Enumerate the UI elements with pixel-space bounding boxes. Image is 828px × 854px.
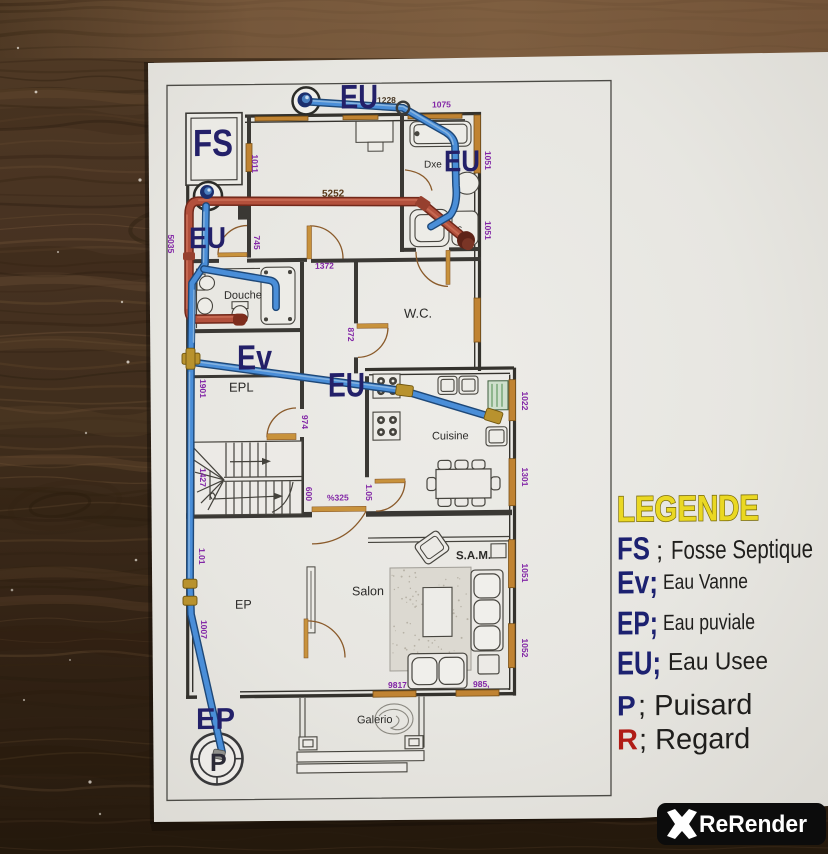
svg-text:%325: %325 [327, 492, 349, 502]
svg-text:Douche: Douche [224, 289, 262, 301]
svg-text:Dxe: Dxe [424, 159, 442, 170]
svg-text:Eau puviale: Eau puviale [663, 609, 755, 635]
svg-text:745: 745 [252, 235, 262, 250]
svg-text:1051: 1051 [520, 563, 530, 582]
svg-text:LEGENDE: LEGENDE [617, 487, 759, 530]
svg-text:EU: EU [340, 78, 378, 116]
svg-text:EU: EU [328, 366, 365, 404]
svg-text:EP: EP [235, 598, 252, 612]
svg-text:P: P [210, 749, 227, 777]
svg-text:Eau Vanne: Eau Vanne [663, 570, 748, 594]
svg-text:1051: 1051 [483, 221, 493, 240]
svg-text:FS: FS [617, 530, 650, 566]
svg-text:; Puisard: ; Puisard [638, 689, 752, 722]
svg-text:1007: 1007 [199, 620, 209, 639]
svg-text:1372: 1372 [315, 261, 334, 271]
svg-text:; Regard: ; Regard [639, 723, 750, 756]
svg-text:R: R [617, 724, 638, 756]
svg-text:FS: FS [193, 123, 233, 165]
svg-text:1051: 1051 [483, 151, 493, 170]
svg-text:Salon: Salon [352, 584, 384, 598]
svg-text:EU: EU [189, 222, 226, 255]
svg-text:Ev: Ev [237, 338, 272, 377]
svg-text:9817: 9817 [388, 680, 407, 690]
svg-text:1301: 1301 [520, 467, 530, 486]
svg-text:1.01: 1.01 [197, 548, 207, 565]
svg-text:;: ; [656, 535, 663, 565]
svg-text:Eau Usee: Eau Usee [668, 648, 768, 676]
svg-text:EP;: EP; [617, 604, 658, 641]
svg-text:Cuisine: Cuisine [432, 430, 469, 442]
svg-text:EPL: EPL [229, 380, 254, 395]
svg-text:ReRender: ReRender [699, 811, 807, 838]
svg-text:W.C.: W.C. [404, 306, 432, 321]
svg-text:Galerio: Galerio [357, 714, 392, 726]
svg-text:1011: 1011 [250, 154, 260, 173]
svg-text:5035: 5035 [166, 234, 176, 253]
svg-text:S.A.M.: S.A.M. [456, 550, 491, 562]
svg-text:1075: 1075 [432, 99, 451, 109]
svg-text:1901: 1901 [198, 379, 208, 398]
svg-text:Fosse Septique: Fosse Septique [671, 533, 813, 565]
svg-text:974: 974 [300, 415, 310, 430]
svg-text:985,: 985, [473, 679, 490, 689]
svg-text:872: 872 [346, 327, 356, 342]
svg-text:1427: 1427 [198, 468, 208, 487]
svg-text:1.05: 1.05 [364, 484, 374, 501]
svg-text:EP: EP [196, 703, 235, 736]
svg-text:Ev;: Ev; [617, 564, 658, 600]
svg-text:P: P [617, 690, 636, 721]
svg-text:1022: 1022 [520, 391, 530, 410]
svg-text:EU: EU [444, 145, 480, 178]
svg-text:EU;: EU; [617, 644, 661, 681]
svg-text:600: 600 [304, 487, 314, 502]
svg-text:1052: 1052 [520, 638, 530, 657]
